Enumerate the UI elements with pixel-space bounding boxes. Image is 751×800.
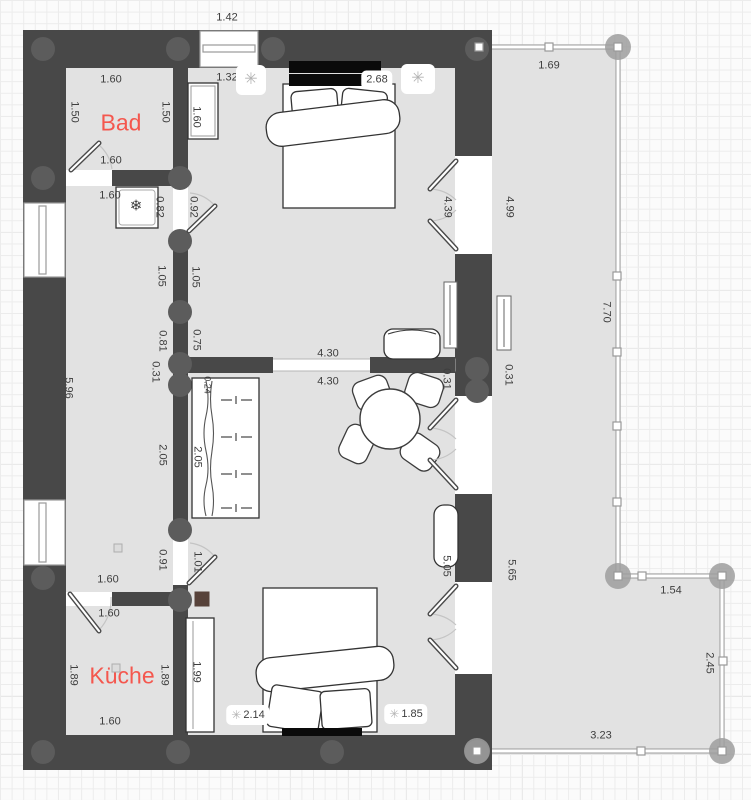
terrace-handle[interactable] <box>638 572 646 580</box>
terrace-handle[interactable] <box>613 498 621 506</box>
bench[interactable] <box>384 329 440 359</box>
cabinet-kueche[interactable] <box>186 618 214 732</box>
terrace-handle[interactable] <box>718 572 726 580</box>
terrace-handle[interactable] <box>545 43 553 51</box>
terrace-handle[interactable] <box>719 657 727 665</box>
round-table[interactable] <box>360 389 420 449</box>
terrace-handle[interactable] <box>614 43 622 51</box>
headboard <box>282 728 362 736</box>
window-left-lower[interactable] <box>24 500 65 565</box>
window-top[interactable] <box>200 31 258 67</box>
terrace-handle[interactable] <box>613 348 621 356</box>
terrace-handle[interactable] <box>613 422 621 430</box>
wall-kueche-top[interactable] <box>112 592 173 606</box>
terrace-floor <box>488 47 722 751</box>
terrace-handle[interactable] <box>718 747 726 755</box>
terrace-handle[interactable] <box>614 572 622 580</box>
wall-bad-bottom[interactable] <box>112 170 173 186</box>
floorplan-canvas: Bad Küche 1.421.601.501.501.601.322.681.… <box>0 0 751 800</box>
terrace-handle[interactable] <box>473 747 481 755</box>
wall-chair[interactable] <box>434 505 458 567</box>
terrace-handle[interactable] <box>613 272 621 280</box>
terrace-handle[interactable] <box>637 747 645 755</box>
wall-bottom[interactable] <box>23 735 492 770</box>
floorplan-drawing <box>0 0 751 800</box>
headboard <box>289 74 389 86</box>
terrace-handle[interactable] <box>475 43 483 51</box>
bed-bottom[interactable] <box>255 588 396 736</box>
washing-machine[interactable] <box>116 187 158 228</box>
sofa[interactable] <box>192 378 259 518</box>
wardrobe-top[interactable] <box>188 83 218 139</box>
window-left-upper[interactable] <box>24 203 65 277</box>
headboard <box>289 61 381 73</box>
wall-left[interactable] <box>23 30 66 770</box>
terrace[interactable] <box>488 47 722 751</box>
